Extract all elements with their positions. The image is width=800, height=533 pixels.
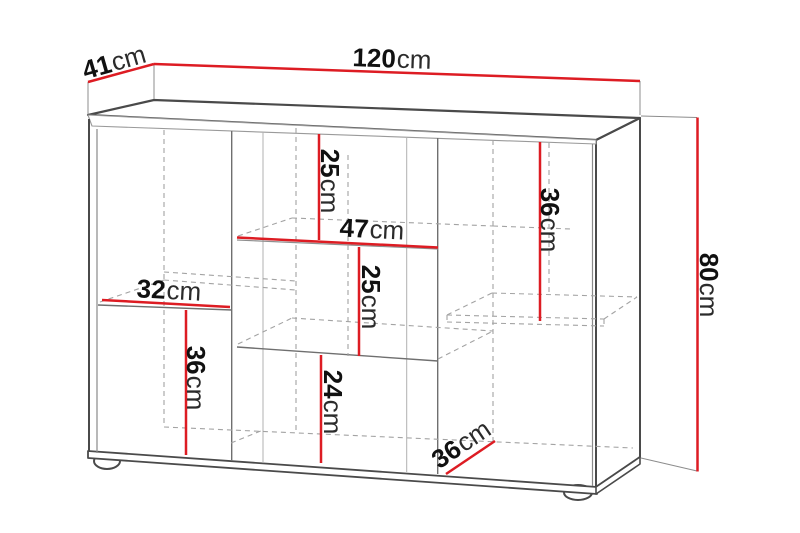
dim-label-36-right: 36cm [535, 188, 565, 253]
dim-label-depth-41: 41cm [79, 39, 149, 86]
mid-bottom-shelf-back-edge [292, 318, 493, 331]
right-shelf-front-edge [447, 315, 604, 319]
plinth-front-band [88, 451, 597, 494]
dim-label-47: 47cm [339, 212, 405, 245]
furniture-dimension-diagram: 41cm 120cm 80cm 25cm 47cm 25cm 32cm 36cm… [0, 0, 800, 533]
dim-label-25-middle: 25cm [356, 265, 386, 330]
mid-top-shelf-side-edge [238, 218, 292, 236]
dim-label-36-left: 36cm [181, 346, 211, 411]
right-shelf-front-thickness [447, 322, 604, 326]
dim-line-47 [237, 238, 438, 248]
floor-back-edge [164, 427, 633, 448]
mid-bottom-shelf-front-edge [237, 347, 438, 361]
ext-height-top [641, 116, 697, 118]
dim-label-height-80: 80cm [694, 253, 724, 318]
mid-bottom-shelf-side-edge [238, 318, 292, 344]
dim-label-32: 32cm [136, 273, 202, 306]
right-shelf-left-edge [447, 293, 492, 315]
dim-label-25-top: 25cm [315, 149, 345, 214]
dim-label-width-120: 120cm [352, 42, 432, 75]
divider-1-floor-edge [231, 430, 263, 443]
ext-height-bottom [641, 458, 697, 471]
dim-label-24: 24cm [318, 370, 348, 435]
mid-bottom-shelf-right-edge [438, 331, 493, 359]
right-side-face [596, 118, 640, 487]
cabinet-drawing: 41cm 120cm 80cm 25cm 47cm 25cm 32cm 36cm… [0, 0, 800, 533]
